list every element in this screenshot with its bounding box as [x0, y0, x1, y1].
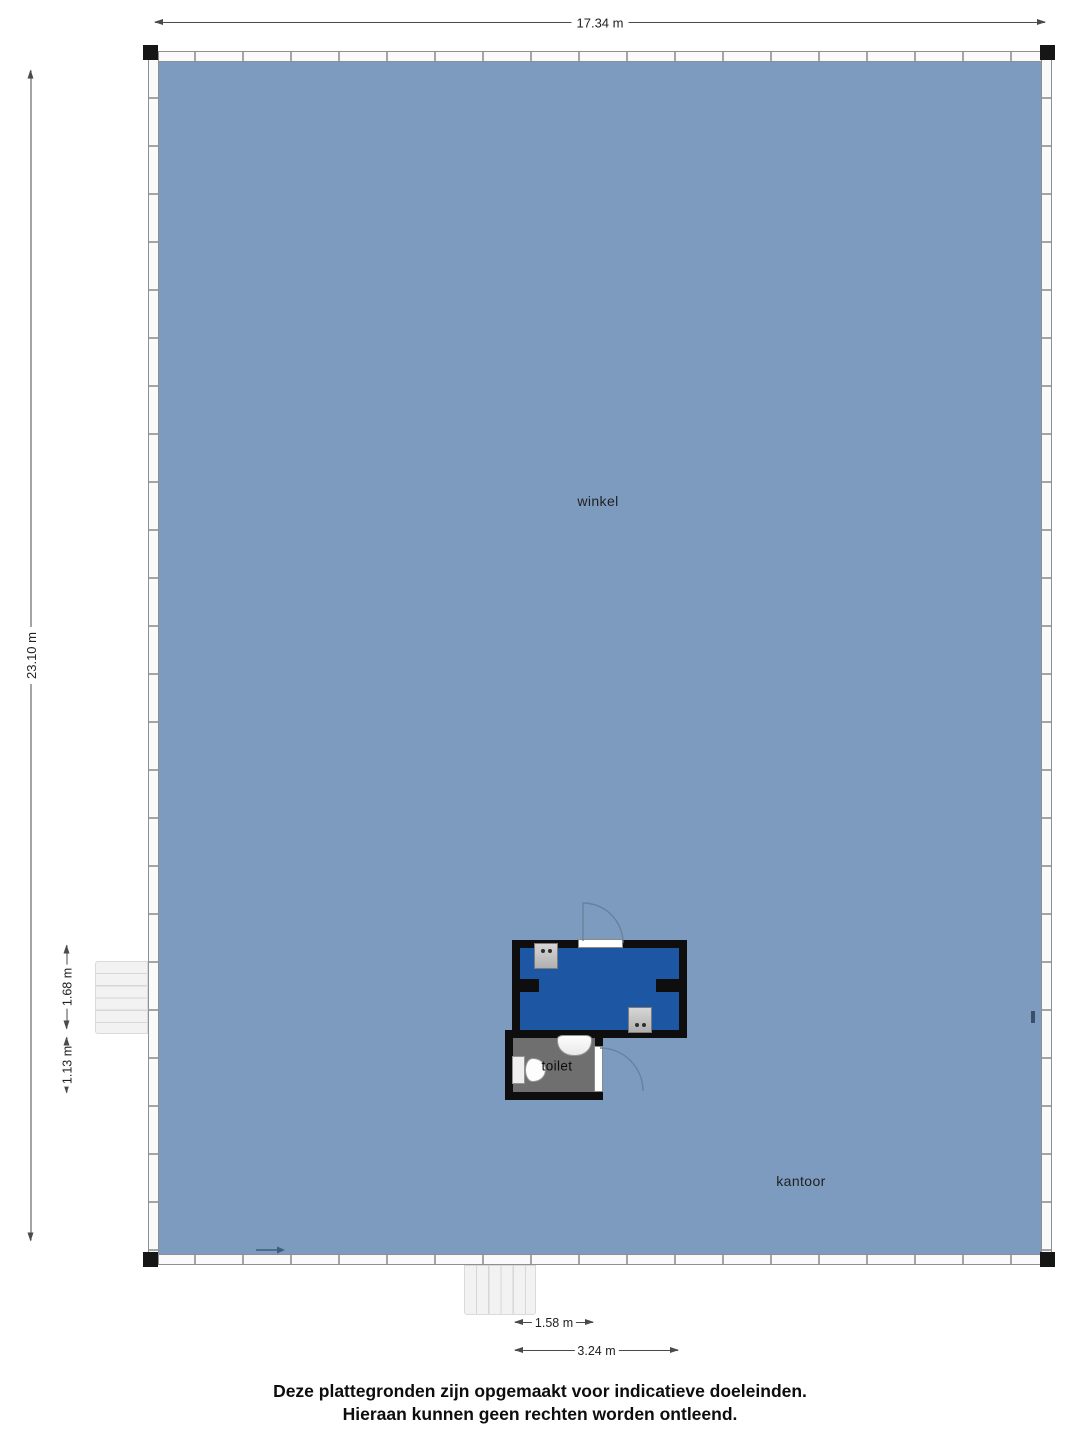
outer-wall-top — [148, 51, 1052, 62]
dimension-bottom-entrance-width-label: 3.24 m — [574, 1344, 618, 1358]
outer-wall-left — [148, 51, 159, 1265]
wall-corner-post — [1040, 45, 1055, 60]
dimension-total-width-label: 17.34 m — [572, 15, 629, 30]
dimension-stairs-offset-label: 1.13 m — [60, 1043, 74, 1087]
dimension-stairs-offset: 1.13 m — [67, 1038, 68, 1093]
appliance-knob-icon — [635, 1023, 639, 1027]
stairs-left — [95, 961, 148, 1034]
wall-corner-post — [143, 45, 158, 60]
appliance-icon — [534, 943, 558, 969]
dimension-bottom-stairs-width: 1.58 m — [515, 1322, 593, 1323]
stairs-bottom — [464, 1265, 536, 1315]
wall-corner-post — [143, 1252, 158, 1267]
appliance-knob-icon — [642, 1023, 646, 1027]
disclaimer: Deze plattegronden zijn opgemaakt voor i… — [0, 1380, 1080, 1425]
inner-wall-stub-right — [656, 979, 687, 992]
floor-plan: 17.34 m 23.10 m 1.68 m 1.13 m 1.58 m 3.2… — [0, 0, 1080, 1440]
disclaimer-line-1: Deze plattegronden zijn opgemaakt voor i… — [0, 1380, 1080, 1403]
outer-wall-bottom — [148, 1254, 1052, 1265]
dimension-total-width: 17.34 m — [155, 22, 1045, 23]
dimension-bottom-stairs-width-label: 1.58 m — [532, 1316, 576, 1330]
dimension-total-height: 23.10 m — [31, 71, 32, 1241]
wall-fixture-mark — [1031, 1011, 1035, 1023]
dimension-bottom-entrance-width: 3.24 m — [515, 1350, 678, 1351]
wall-corner-post — [1040, 1252, 1055, 1267]
inner-room-door — [578, 939, 623, 948]
dimension-stairs-height-label: 1.68 m — [60, 965, 74, 1009]
inner-wall-stub-left — [512, 979, 539, 992]
appliance-knob-icon — [548, 949, 552, 953]
appliance-icon — [628, 1007, 652, 1033]
appliance-knob-icon — [541, 949, 545, 953]
toilet-door — [594, 1046, 603, 1092]
room-label-winkel: winkel — [577, 493, 618, 509]
dimension-stairs-height: 1.68 m — [67, 946, 68, 1029]
disclaimer-line-2: Hieraan kunnen geen rechten worden ontle… — [0, 1403, 1080, 1426]
outer-wall-right — [1041, 51, 1052, 1265]
dimension-total-height-label: 23.10 m — [24, 627, 39, 684]
toilet-tank-icon — [512, 1056, 525, 1084]
room-label-kantoor: kantoor — [776, 1173, 826, 1189]
room-label-toilet: toilet — [542, 1059, 573, 1074]
